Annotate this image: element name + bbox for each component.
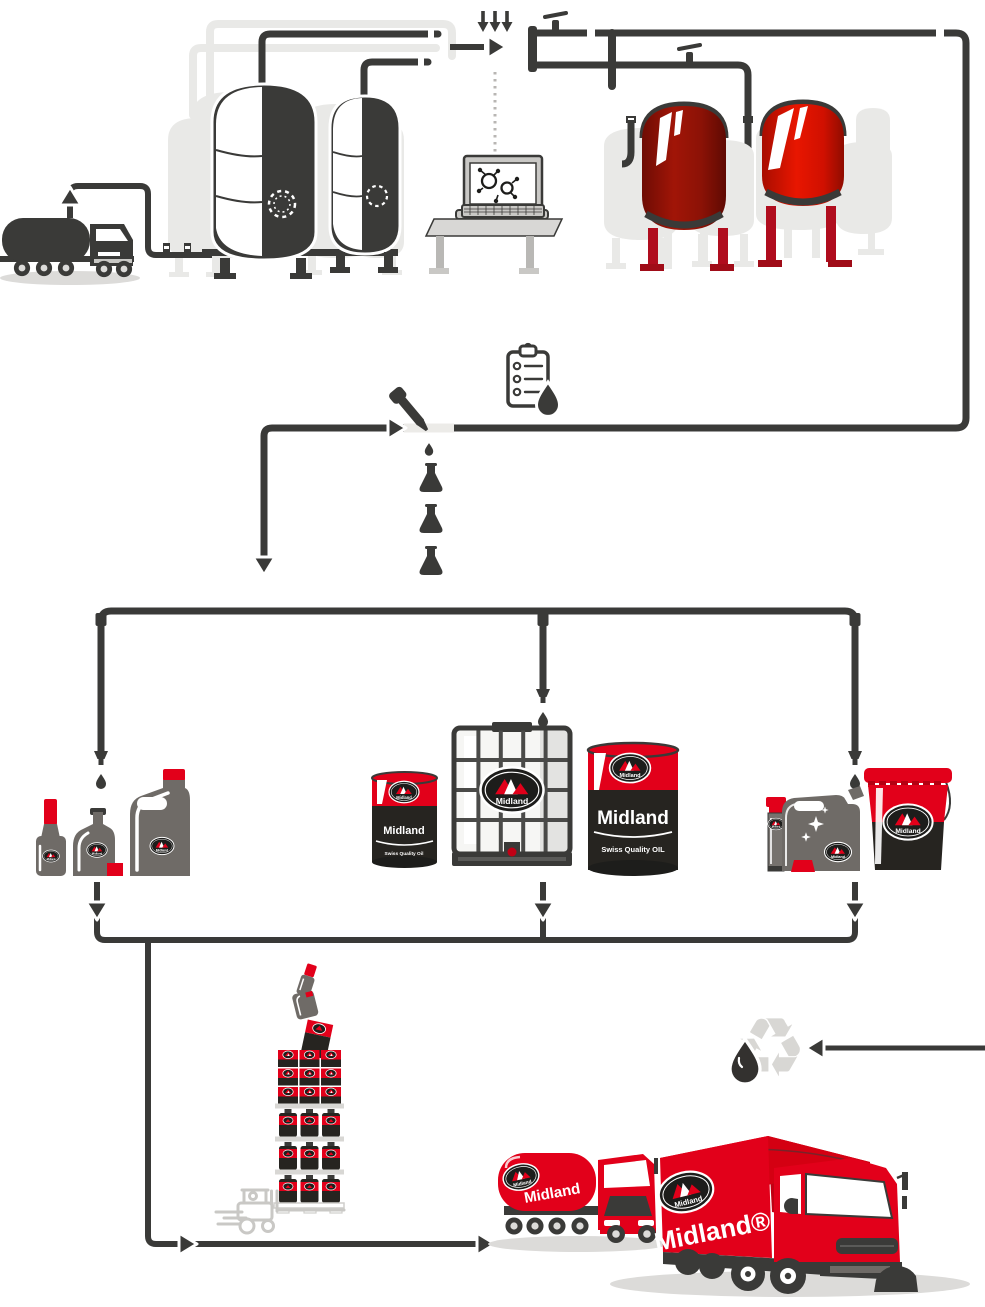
jerry-can: [782, 786, 864, 872]
down-arrow-icon: [532, 902, 554, 920]
palletizing: [216, 963, 344, 1233]
left-arrow-icon: [806, 1037, 824, 1059]
oil-bottle-1l: [73, 808, 123, 876]
qc-oil-drop-icon: [537, 382, 560, 417]
oil-production-process-diagram: Midland: [0, 0, 985, 1307]
drum-large-brand: Midland: [597, 808, 669, 829]
qc-sample-point: [387, 385, 454, 456]
pail: [864, 768, 952, 870]
main-pipeline: [264, 13, 966, 556]
down-arrow-icon: [86, 902, 108, 920]
recycling: ♻: [730, 1001, 985, 1096]
storage-tank-large: [212, 84, 316, 279]
flask-icon: [420, 463, 443, 492]
pallet-stack: [274, 1050, 344, 1213]
nozzle-icon: [94, 751, 108, 765]
flask-icon: [420, 546, 443, 575]
falling-products: [291, 963, 333, 1060]
nozzle-icon: [536, 689, 550, 703]
packaged-products: Midland Swiss Quality Oil Midland Swiss …: [36, 722, 952, 876]
box-truck: Midland®: [610, 1136, 970, 1297]
additive-arrows-icon: [478, 11, 513, 32]
qc-flasks: [420, 463, 443, 575]
drum-large-tagline: Swiss Quality OIL: [601, 845, 665, 854]
blending-tank-bright: [758, 102, 852, 267]
work-table: [426, 219, 562, 274]
flow-arrow-icon: [179, 1233, 197, 1255]
base-oil-storage-tanks: [168, 84, 404, 279]
flask-icon: [420, 504, 443, 533]
nozzle-icon: [848, 751, 862, 765]
down-arrow-icon: [253, 557, 275, 575]
tanker-truck: Midland: [488, 1153, 668, 1252]
drum-small-tagline: Swiss Quality Oil: [385, 851, 424, 857]
flow-arrow-icon: [388, 417, 406, 439]
oil-drum-small: Midland Swiss Quality Oil: [372, 772, 437, 868]
process-diagram-canvas: Midland: [0, 0, 985, 1307]
additive-bottle: [36, 799, 66, 876]
laptop-icon: [456, 205, 548, 219]
storage-tank-small: [330, 96, 400, 273]
recycle-icon: ♻: [730, 1001, 807, 1096]
formulation-workstation: [426, 156, 562, 274]
down-arrow-icon: [844, 902, 866, 920]
blending-tank-maroon: [640, 104, 734, 271]
flow-arrow-icon: [488, 36, 506, 58]
drum-small-brand: Midland: [383, 825, 425, 837]
up-arrow-icon: [59, 187, 81, 205]
ibc-container: [452, 722, 572, 866]
oil-jug-5l: [130, 769, 190, 876]
oil-drum-large: Midland Swiss Quality OIL: [588, 743, 678, 876]
tanker-delivery-truck: [0, 218, 134, 277]
